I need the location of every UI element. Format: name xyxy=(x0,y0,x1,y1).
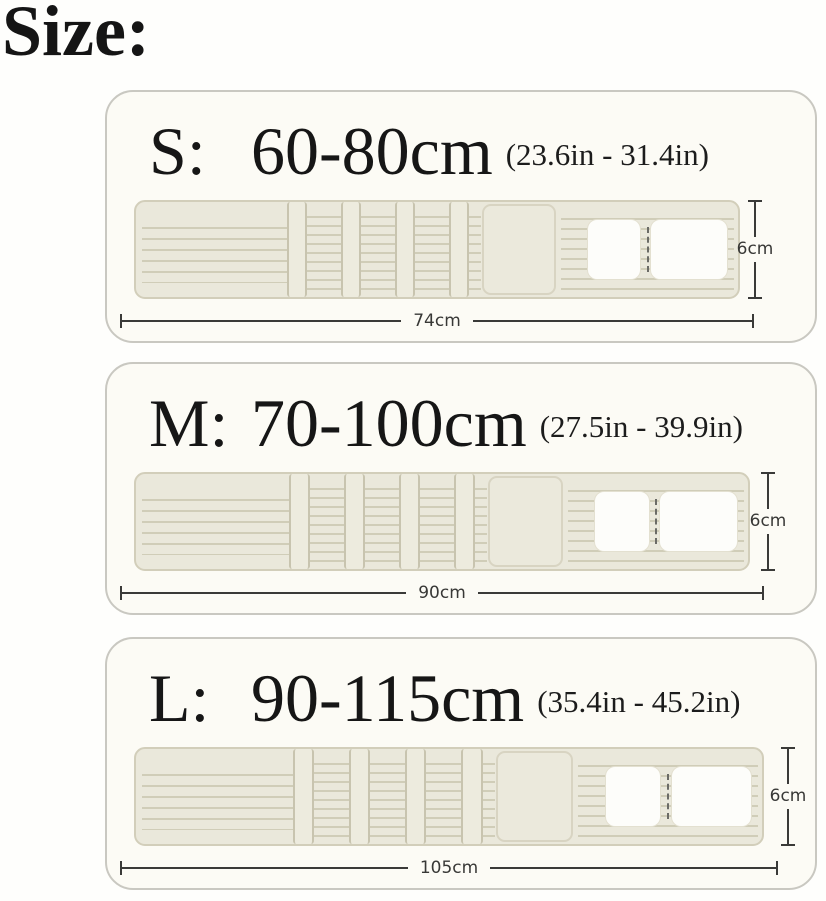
size-card-s-header: S: 60-80cm (23.6in - 31.4in) xyxy=(149,108,801,194)
belt-illustration xyxy=(134,200,740,299)
size-card-m-header: M: 70-100cm (27.5in - 39.9in) xyxy=(149,380,801,466)
belt-panel-lined xyxy=(136,749,293,844)
belt-illustration xyxy=(134,747,764,846)
belt-strap-divider xyxy=(287,202,307,297)
dimension-line xyxy=(122,592,406,594)
dimension-end-cap xyxy=(776,861,778,875)
width-dimension: 74cm xyxy=(120,313,754,329)
size-range-cm: 60-80cm xyxy=(251,112,493,191)
belt-panel-lined xyxy=(136,474,289,569)
belt-pocket-large xyxy=(651,220,727,279)
dimension-end-cap xyxy=(781,844,795,846)
belt-segment-lined xyxy=(314,749,349,844)
belt-pocket-large xyxy=(672,767,751,826)
belt-segment-lined xyxy=(483,749,496,844)
belt-center-panel xyxy=(482,204,555,295)
dimension-end-cap xyxy=(762,586,764,600)
belt-segment-lined xyxy=(370,749,405,844)
width-dimension-label: 105cm xyxy=(408,860,490,877)
belt-strap-divider xyxy=(405,749,426,844)
belt-pocket-small xyxy=(606,767,661,826)
belt-pocket-large xyxy=(660,492,737,551)
belt-segment-lined xyxy=(415,202,449,297)
belt-strap-divider xyxy=(449,202,469,297)
belt-pocket-small xyxy=(595,492,648,551)
belt-strap-divider xyxy=(461,749,482,844)
size-range-inches: (23.6in - 31.4in) xyxy=(506,129,709,173)
height-dimension-label: 6cm xyxy=(770,784,807,809)
dimension-line xyxy=(490,867,776,869)
dimension-line xyxy=(122,867,408,869)
dimension-line xyxy=(754,202,756,237)
belt-end-panel xyxy=(564,474,748,569)
dimension-line xyxy=(767,474,769,509)
size-letter: S: xyxy=(149,112,251,191)
belt-segment-lined xyxy=(310,474,344,569)
height-dimension-label: 6cm xyxy=(737,237,774,262)
size-range-cm: 90-115cm xyxy=(251,659,524,738)
size-range-cm: 70-100cm xyxy=(251,384,527,463)
belt-strap-divider xyxy=(293,749,314,844)
belt-center-panel xyxy=(488,476,563,567)
page-title: Size: xyxy=(2,0,150,73)
belt-segment-lined xyxy=(475,474,487,569)
belt-strap-divider xyxy=(344,474,365,569)
size-card-m: M: 70-100cm (27.5in - 39.9in) 90cm xyxy=(105,362,817,615)
dimension-line xyxy=(787,809,789,844)
height-dimension: 6cm xyxy=(733,200,777,299)
width-dimension-label: 90cm xyxy=(406,585,478,602)
belt-segment-lined xyxy=(361,202,395,297)
belt-segment-lined xyxy=(469,202,481,297)
belt-segment-lined xyxy=(307,202,341,297)
belt-end-panel xyxy=(574,749,762,844)
size-card-l: L: 90-115cm (35.4in - 45.2in) 105cm xyxy=(105,637,817,890)
belt-center-panel xyxy=(496,751,572,842)
belt-strap-divider xyxy=(289,474,310,569)
size-card-l-header: L: 90-115cm (35.4in - 45.2in) xyxy=(149,655,801,741)
belt-strap-divider xyxy=(341,202,361,297)
size-range-inches: (35.4in - 45.2in) xyxy=(537,676,740,720)
dimension-end-cap xyxy=(748,297,762,299)
dimension-line xyxy=(473,320,752,322)
belt-illustration xyxy=(134,472,750,571)
pocket-divider-dashed xyxy=(655,499,657,545)
belt-end-panel xyxy=(557,202,738,297)
size-card-s: S: 60-80cm (23.6in - 31.4in) 74cm xyxy=(105,90,817,343)
belt-strap-divider xyxy=(395,202,415,297)
belt-segment-lined xyxy=(365,474,399,569)
belt-segment-lined xyxy=(426,749,461,844)
width-dimension: 105cm xyxy=(120,860,778,876)
height-dimension: 6cm xyxy=(766,747,810,846)
dimension-end-cap xyxy=(752,314,754,328)
size-letter: L: xyxy=(149,659,251,738)
pocket-divider-dashed xyxy=(667,774,669,820)
belt-strap-divider xyxy=(454,474,475,569)
width-dimension: 90cm xyxy=(120,585,764,601)
size-letter: M: xyxy=(149,384,251,463)
belt-panel-lined xyxy=(136,202,287,297)
belt-pocket-small xyxy=(588,220,641,279)
belt-segment-lined xyxy=(420,474,454,569)
dimension-end-cap xyxy=(761,569,775,571)
belt-strap-divider xyxy=(349,749,370,844)
height-dimension-label: 6cm xyxy=(750,509,787,534)
size-range-inches: (27.5in - 39.9in) xyxy=(540,401,743,445)
height-dimension: 6cm xyxy=(746,472,790,571)
dimension-line xyxy=(754,262,756,297)
pocket-divider-dashed xyxy=(647,227,649,273)
belt-strap-divider xyxy=(399,474,420,569)
width-dimension-label: 74cm xyxy=(401,313,473,330)
dimension-line xyxy=(787,749,789,784)
size-chart-page: Size: S: 60-80cm (23.6in - 31.4in) xyxy=(0,0,826,901)
dimension-line xyxy=(122,320,401,322)
dimension-line xyxy=(478,592,762,594)
dimension-line xyxy=(767,534,769,569)
